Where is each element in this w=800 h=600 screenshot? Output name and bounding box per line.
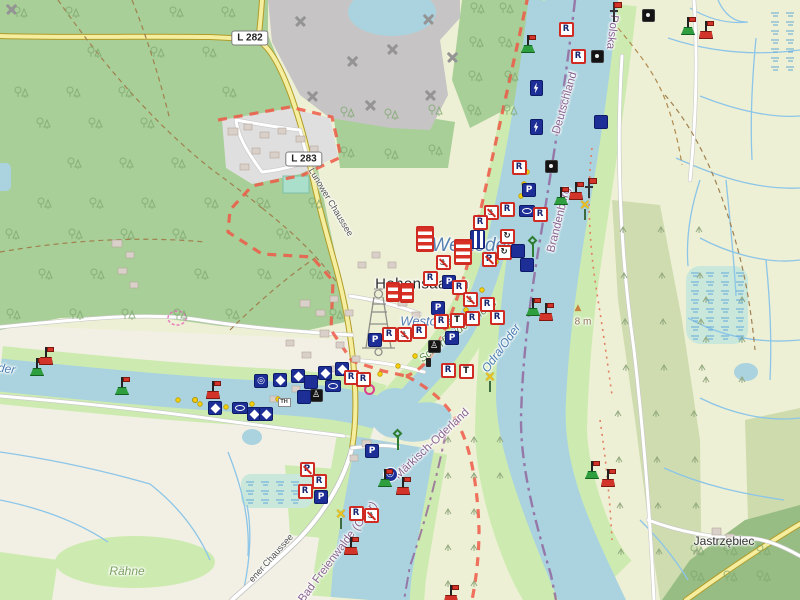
red-buoy-icon[interactable] xyxy=(37,346,55,366)
cross-beacon-icon[interactable]: × xyxy=(332,510,350,530)
overhead-cable-sign-icon[interactable] xyxy=(527,78,545,98)
mine-symbol-icon xyxy=(343,52,361,72)
berthing-sign-icon[interactable]: P xyxy=(366,330,384,350)
meadow-2 xyxy=(0,552,58,600)
waterway-sign-t-icon[interactable]: T xyxy=(457,361,475,381)
road-ref-badge-l-282: L 282 xyxy=(231,31,268,46)
circle-board-sign-icon[interactable]: ◎ xyxy=(252,371,270,391)
blue-board-sign-icon[interactable] xyxy=(518,255,536,275)
pond xyxy=(242,429,262,445)
red-buoy-icon[interactable] xyxy=(697,20,715,40)
red-buoy-icon[interactable] xyxy=(537,302,555,322)
mine-symbol-icon xyxy=(303,87,321,107)
red-buoy-icon[interactable] xyxy=(442,584,460,600)
waterway-prohibition-sign-icon[interactable]: R xyxy=(354,369,372,389)
green-buoy-icon[interactable] xyxy=(376,468,394,488)
cross-beacon-icon[interactable]: × xyxy=(481,373,499,393)
elevation-peak-icon[interactable]: ▲ xyxy=(569,298,587,318)
flag-beacon-icon[interactable] xyxy=(580,178,598,198)
red-buoy-icon[interactable] xyxy=(342,536,360,556)
berthing-sign-icon[interactable]: P xyxy=(520,180,538,200)
bollard-icon xyxy=(419,352,437,372)
waterway-prohibition-sign-icon[interactable]: R xyxy=(463,308,481,328)
waterway-prohibition-sign-icon[interactable]: R xyxy=(421,268,439,288)
diamond-board-sign-icon[interactable] xyxy=(271,370,289,390)
waterway-prohibition-sign-icon[interactable]: R xyxy=(531,204,549,224)
berthing-sign-icon[interactable]: P xyxy=(363,441,381,461)
small-lake xyxy=(0,163,11,191)
mine-symbol-icon xyxy=(419,10,437,30)
diamond-beacon-icon[interactable] xyxy=(524,237,542,257)
waterway-prohibition-sign-icon[interactable]: R xyxy=(557,19,575,39)
striped-marker-sign-icon[interactable] xyxy=(398,283,416,303)
red-buoy-icon[interactable] xyxy=(394,476,412,496)
dark-board-sign-icon[interactable] xyxy=(542,156,560,176)
dark-board-sign-icon[interactable] xyxy=(588,46,606,66)
meadow xyxy=(55,536,215,588)
striped-marker-sign-icon[interactable] xyxy=(454,242,472,262)
mine-symbol-icon xyxy=(443,48,461,68)
no-anchoring-sign-icon[interactable]: ⚓ xyxy=(362,505,380,525)
diamond-board-sign-icon[interactable] xyxy=(206,398,224,418)
diamond-beacon-icon[interactable] xyxy=(389,430,407,450)
berthing-sign-icon[interactable]: P xyxy=(443,328,461,348)
cross-beacon-icon[interactable]: × xyxy=(576,201,594,221)
info-plate-icon[interactable]: TH xyxy=(275,392,293,412)
junction-node-icon xyxy=(186,390,204,410)
red-buoy-icon[interactable] xyxy=(599,468,617,488)
map-canvas[interactable]: HohensaatenJastrzębiecLunower Chausseeen… xyxy=(0,0,800,600)
berthing-sign-icon[interactable]: P xyxy=(312,487,330,507)
dark-board-sign-icon[interactable] xyxy=(639,5,657,25)
blue-board-sign-icon[interactable] xyxy=(295,387,313,407)
diamond-board-sign-icon[interactable] xyxy=(257,404,275,424)
waterway-prohibition-sign-icon[interactable]: R xyxy=(498,199,516,219)
mine-symbol-icon xyxy=(383,40,401,60)
mine-symbol-icon xyxy=(421,86,439,106)
overhead-cable-sign-icon[interactable] xyxy=(527,117,545,137)
waterway-prohibition-sign-icon[interactable]: R xyxy=(510,157,528,177)
mine-symbol-icon xyxy=(291,12,309,32)
waterway-prohibition-sign-icon[interactable]: R xyxy=(569,46,587,66)
no-berthing-sign-icon[interactable]: P xyxy=(480,249,498,269)
scrub-area-2 xyxy=(745,408,800,520)
mine-symbol-icon xyxy=(2,0,20,20)
waterway-prohibition-sign-icon[interactable]: R xyxy=(488,307,506,327)
waterway-prohibition-sign-icon[interactable]: R xyxy=(439,360,457,380)
no-anchoring-sign-icon[interactable]: ⚓ xyxy=(461,289,479,309)
road-ref-badge-l-283: L 283 xyxy=(285,152,322,167)
green-buoy-icon[interactable] xyxy=(519,34,537,54)
striped-marker-sign-icon[interactable] xyxy=(416,229,434,249)
green-buoy-icon[interactable] xyxy=(113,376,131,396)
green-buoy-icon[interactable] xyxy=(679,16,697,36)
ellipse-board-sign-icon[interactable] xyxy=(324,376,342,396)
blue-board-sign-icon[interactable] xyxy=(592,112,610,132)
marsh-area-2 xyxy=(686,266,748,344)
mine-symbol-icon xyxy=(361,96,379,116)
red-buoy-icon[interactable] xyxy=(204,380,222,400)
pond-2 xyxy=(734,363,758,381)
flag-beacon-icon[interactable] xyxy=(605,2,623,22)
